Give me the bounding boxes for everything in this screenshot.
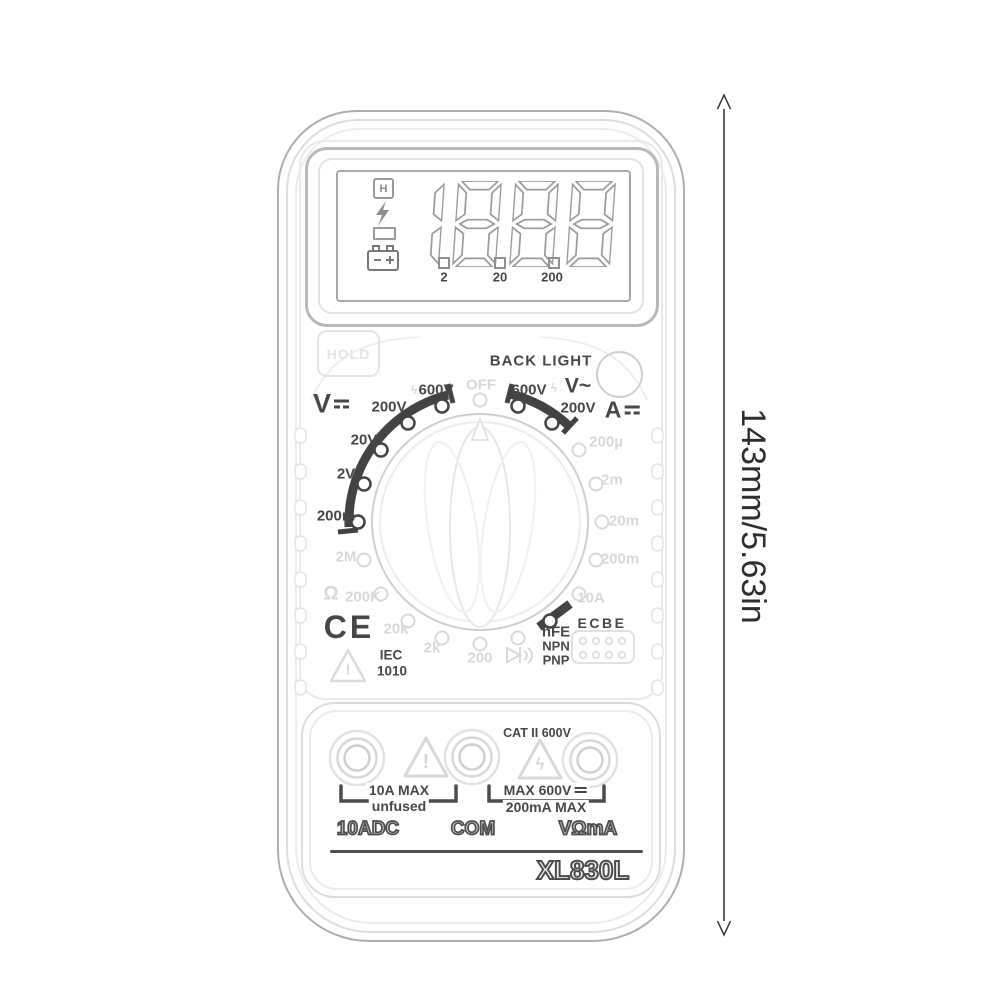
vac-symbol: V~	[565, 376, 591, 397]
diode-buzzer-icon	[507, 647, 532, 663]
lcd-digit-2	[452, 181, 502, 267]
hold-button-label: HOLD	[327, 346, 371, 362]
lcd-decimal-square-1	[438, 257, 450, 269]
iec-label: IEC	[380, 648, 403, 662]
dial-label-vdc-200m: 200m	[317, 509, 355, 524]
lcd-digits	[395, 181, 616, 267]
lcd-digit-1	[395, 181, 445, 267]
transistor-socket	[572, 631, 634, 663]
product-image: H 2 20 200 HOLD BACK LIGHT V A V~ Ω ϟ ϟ …	[0, 0, 1000, 1000]
dial-dot-vac-600v	[512, 400, 525, 413]
jack-label-10adc: 10ADC	[337, 820, 399, 839]
dial-label-vac-200v: 200V	[560, 401, 595, 416]
note-10a-max: 10A MAX	[366, 783, 432, 797]
rotary-dial-knob[interactable]	[372, 414, 588, 630]
hold-button[interactable]: HOLD	[317, 330, 380, 377]
note-200ma-max: 200mA MAX	[503, 800, 589, 814]
dc-symbol-icon	[334, 400, 349, 409]
warning-triangle-glyph: !	[423, 752, 430, 772]
lcd-minus-icon	[373, 227, 396, 240]
lcd-lightning-icon	[376, 201, 389, 226]
lcd-decimal-square-3	[548, 257, 560, 269]
dial-label-hfe: hFE	[542, 625, 570, 640]
hv-bolt-icon: ϟ	[411, 384, 417, 396]
dial-label-vdc-200v: 200V	[371, 400, 406, 415]
adc-symbol: A	[605, 399, 640, 422]
lcd-range-marker-20: 20	[493, 271, 507, 284]
backlight-label: BACK LIGHT	[490, 354, 593, 369]
lcd-range-marker-200: 200	[541, 271, 563, 284]
dc-symbol-icon	[574, 787, 586, 793]
npn-label: NPN	[542, 640, 569, 653]
dial-label-vac-600v: 600V	[511, 383, 546, 398]
ce-mark: CE	[324, 611, 374, 643]
jack-10adc	[330, 731, 384, 785]
dial-label-adc-200m: 200m	[601, 552, 639, 567]
terminal-separator-line	[330, 850, 643, 853]
dial-label-res-20k: 20k	[383, 622, 408, 637]
model-label: XL830L	[537, 857, 630, 883]
vdc-symbol: V	[313, 391, 349, 418]
dial-dot-adc-20m	[596, 516, 609, 529]
dial-dot-vdc-200v	[402, 417, 415, 430]
dial-label-adc-2m: 2m	[601, 473, 623, 488]
cat-rating-label: CAT II 600V	[503, 727, 571, 740]
pnp-label: PNP	[543, 654, 570, 667]
ecbe-label: ECBE	[578, 616, 627, 630]
warning-glyph: !	[346, 663, 351, 678]
ohm-symbol: Ω	[323, 585, 338, 604]
dimension-label: 143mm/5.63in	[736, 408, 770, 623]
dial-label-off: OFF	[466, 378, 496, 393]
lcd-range-marker-2: 2	[440, 271, 447, 284]
hv-bolt-icon: ϟ	[551, 382, 557, 394]
iec-number: 1010	[377, 664, 407, 678]
lcd-hold-annunciator-icon: H	[373, 178, 394, 199]
dial-dot-vac-200v	[546, 417, 559, 430]
jack-label-vohm-ma: VΩmA	[559, 820, 618, 839]
lcd-digit-3	[509, 181, 559, 267]
jack-com	[445, 730, 499, 784]
jack-label-com: COM	[451, 820, 495, 839]
lcd-decimal-square-2	[494, 257, 506, 269]
dial-dot-vdc-600v	[436, 400, 449, 413]
dial-dot-diode-buzzer	[512, 632, 525, 645]
note-max-600v: MAX 600V	[501, 783, 590, 797]
dial-label-res-2m: 2M	[336, 550, 357, 565]
dimension-arrow	[718, 95, 731, 935]
dial-label-vdc-600v: 600V	[418, 383, 453, 398]
dial-label-res-2k: 2k	[424, 641, 441, 656]
lcd-digit-4	[566, 181, 616, 267]
dial-label-vdc-20v: 20V	[351, 433, 378, 448]
dial-label-adc-200u: 200µ	[589, 435, 623, 450]
dial-label-res-200: 200	[467, 651, 492, 666]
dial-dot-res-2m	[358, 554, 371, 567]
backlight-button[interactable]	[596, 351, 643, 398]
dial-label-res-200k: 200K	[345, 590, 381, 605]
hv-triangle-glyph: ϟ	[536, 756, 545, 773]
dial-label-vdc-2v: 2V	[337, 467, 355, 482]
jack-vohm-ma	[563, 733, 617, 787]
dial-dot-adc-200u	[573, 444, 586, 457]
dial-dot-vdc-2v	[358, 478, 371, 491]
dial-label-adc-10a: 10A	[577, 591, 605, 606]
dial-label-adc-20m: 20m	[609, 514, 639, 529]
dc-symbol-icon	[624, 406, 639, 415]
note-unfused: unfused	[369, 799, 429, 813]
dial-dot-off	[474, 394, 487, 407]
lcd-battery-icon	[368, 246, 398, 270]
